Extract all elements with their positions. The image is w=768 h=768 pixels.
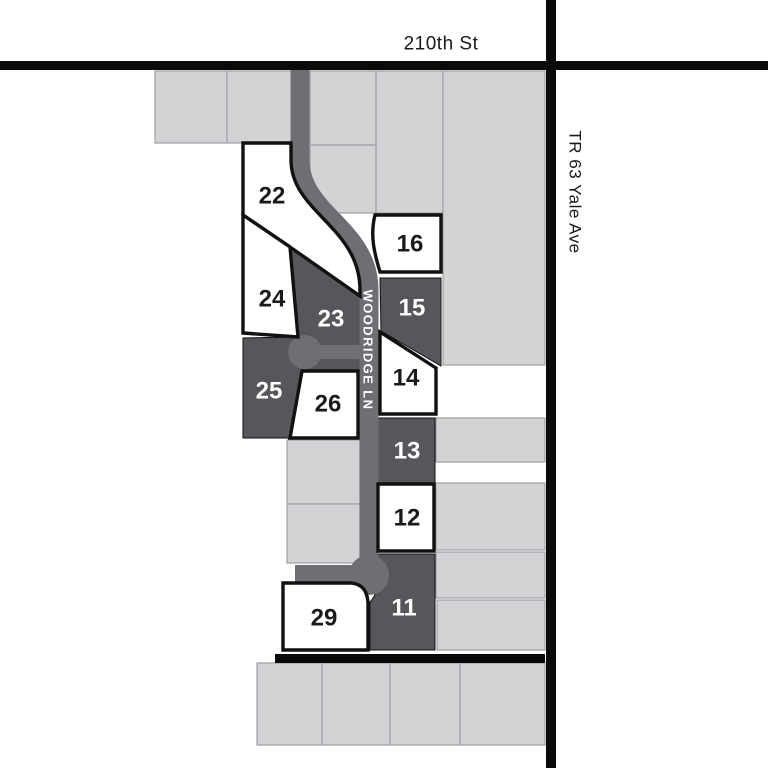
210th-st-label: 210th St xyxy=(404,34,479,55)
parcel-s-4 xyxy=(460,663,545,745)
parcel-e-3 xyxy=(436,483,545,550)
parcel-s-1 xyxy=(257,663,322,745)
lot-11-label: 11 xyxy=(391,595,416,622)
parcel-s-2 xyxy=(322,663,390,745)
lot-29-label: 29 xyxy=(311,605,338,632)
lot-22-label: 22 xyxy=(259,183,286,210)
lot-24-label: 24 xyxy=(259,286,286,313)
parcel-n-1 xyxy=(310,71,376,145)
lot-25-label: 25 xyxy=(256,378,283,405)
woodridge-court-bulb xyxy=(288,335,322,369)
parcel-nw-2 xyxy=(227,71,292,143)
south-boundary-roadway xyxy=(275,654,545,663)
parcel-s-3 xyxy=(390,663,460,745)
parcel-w-1 xyxy=(287,440,360,504)
parcel-e-5 xyxy=(437,600,545,650)
plat-map-canvas: 210th StTR 63 Yale AveWOODRIDGE LN222423… xyxy=(0,0,768,768)
plat-map-page: 210th StTR 63 Yale AveWOODRIDGE LN222423… xyxy=(0,0,768,768)
lot-13-label: 13 xyxy=(394,438,421,465)
parcel-e-4 xyxy=(436,552,545,598)
210th-st-roadway xyxy=(0,61,768,70)
lot-26-label: 26 xyxy=(315,391,342,418)
lot-12-label: 12 xyxy=(394,505,421,532)
parcel-nw-1 xyxy=(155,71,227,143)
parcel-w-2 xyxy=(287,504,360,563)
lot-15-label: 15 xyxy=(399,295,426,322)
tr63-yale-ave-label: TR 63 Yale Ave xyxy=(566,130,585,253)
woodridge-ln-label: WOODRIDGE LN xyxy=(361,290,376,411)
parcel-e-2 xyxy=(436,418,545,462)
parcel-n-3 xyxy=(376,71,443,213)
tr63-yale-ave-roadway xyxy=(546,0,556,768)
lot-16-label: 16 xyxy=(397,231,424,258)
lot-23-label: 23 xyxy=(318,306,345,333)
parcel-e-large xyxy=(443,71,545,365)
lot-14-label: 14 xyxy=(393,365,420,392)
